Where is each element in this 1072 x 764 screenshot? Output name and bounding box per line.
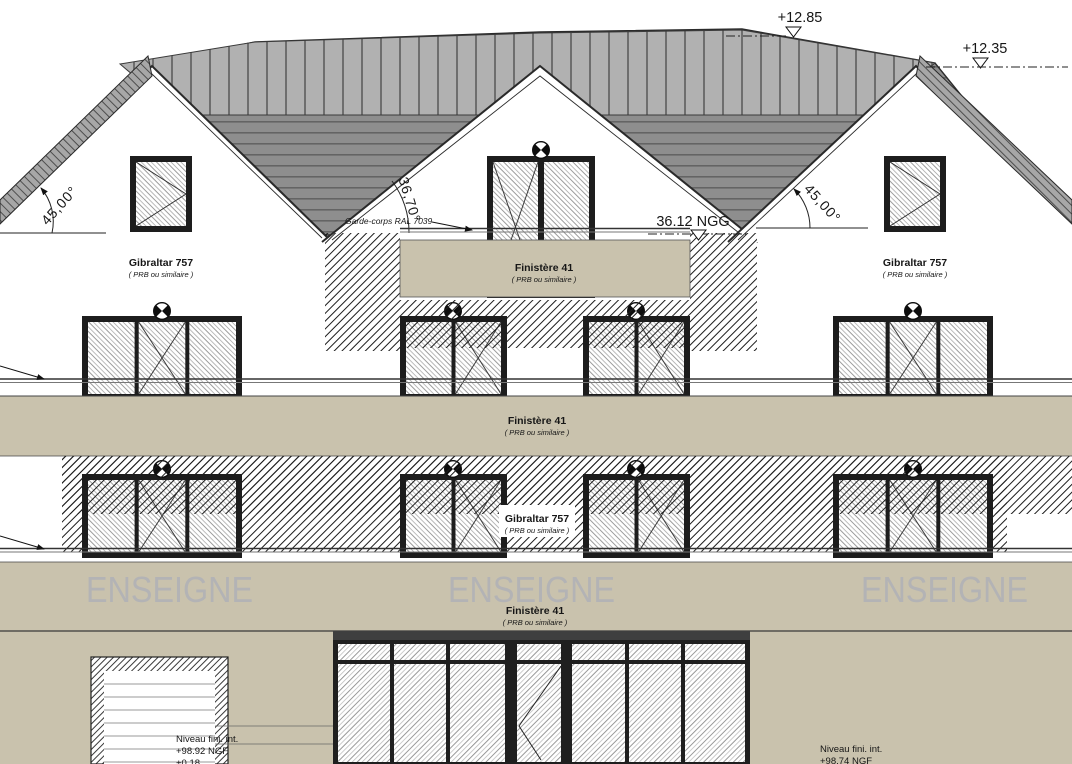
material-sublabel: ( PRB ou similaire ) xyxy=(883,270,948,279)
material-sublabel: ( PRB ou similaire ) xyxy=(129,270,194,279)
shadow-left-flank xyxy=(325,233,400,351)
window-2f-left xyxy=(82,316,242,400)
signage-text-left: ENSEIGNE xyxy=(86,569,253,610)
vent-fan-icon xyxy=(154,303,171,320)
garde-corps-label: Garde-corps RAL 7039 xyxy=(345,216,433,226)
parapet-band-upper: Finistère 41 ( PRB ou similaire ) xyxy=(0,396,1072,456)
material-label: Gibraltar 757 xyxy=(505,513,569,525)
material-sublabel: ( PRB ou similaire ) xyxy=(512,275,577,284)
material-label: Finistère 41 xyxy=(515,262,574,274)
material-label: Finistère 41 xyxy=(506,605,565,617)
vent-fan-icon xyxy=(533,142,550,159)
facade-elevation-drawing: +12.85 +12.35 45,00° 45,00° 36,70° Finis… xyxy=(0,0,1072,764)
window-2f-right xyxy=(833,316,993,400)
material-sublabel: ( PRB ou similaire ) xyxy=(505,428,570,437)
elevation-eave-label: +12.35 xyxy=(963,41,1008,57)
storefront-lintel xyxy=(333,631,750,640)
ngg-label: 36.12 NGG xyxy=(656,214,729,230)
storefront xyxy=(333,631,750,764)
level-note-left-3: +0.18 xyxy=(176,758,200,764)
ground-floor: ENSEIGNE ENSEIGNE ENSEIGNE Finistère 41 … xyxy=(0,562,1072,764)
material-label: Finistère 41 xyxy=(508,415,567,427)
level-note-right-2: +98.74 NGF xyxy=(820,756,872,764)
gable-window-right xyxy=(884,156,946,232)
material-label: Gibraltar 757 xyxy=(129,257,193,269)
elevation-ridge-label: +12.85 xyxy=(778,10,823,26)
material-sublabel: ( PRB ou similaire ) xyxy=(505,526,570,535)
shadow-right-flank xyxy=(690,233,757,351)
level-note-left-2: +98.92 NGF xyxy=(176,746,228,757)
gable-window-left xyxy=(130,156,192,232)
first-floor: Gibraltar 757 ( PRB ou similaire ) xyxy=(0,456,1072,558)
signage-text-right: ENSEIGNE xyxy=(861,569,1028,610)
material-label: Gibraltar 757 xyxy=(883,257,947,269)
balcony-shadow-strip xyxy=(400,300,690,348)
level-note-right-1: Niveau fini. int. xyxy=(820,744,882,755)
level-note-left-1: Niveau fini. int. xyxy=(176,734,238,745)
vent-fan-icon xyxy=(905,303,922,320)
signage-text-center: ENSEIGNE xyxy=(448,569,615,610)
material-sublabel: ( PRB ou similaire ) xyxy=(503,618,568,627)
